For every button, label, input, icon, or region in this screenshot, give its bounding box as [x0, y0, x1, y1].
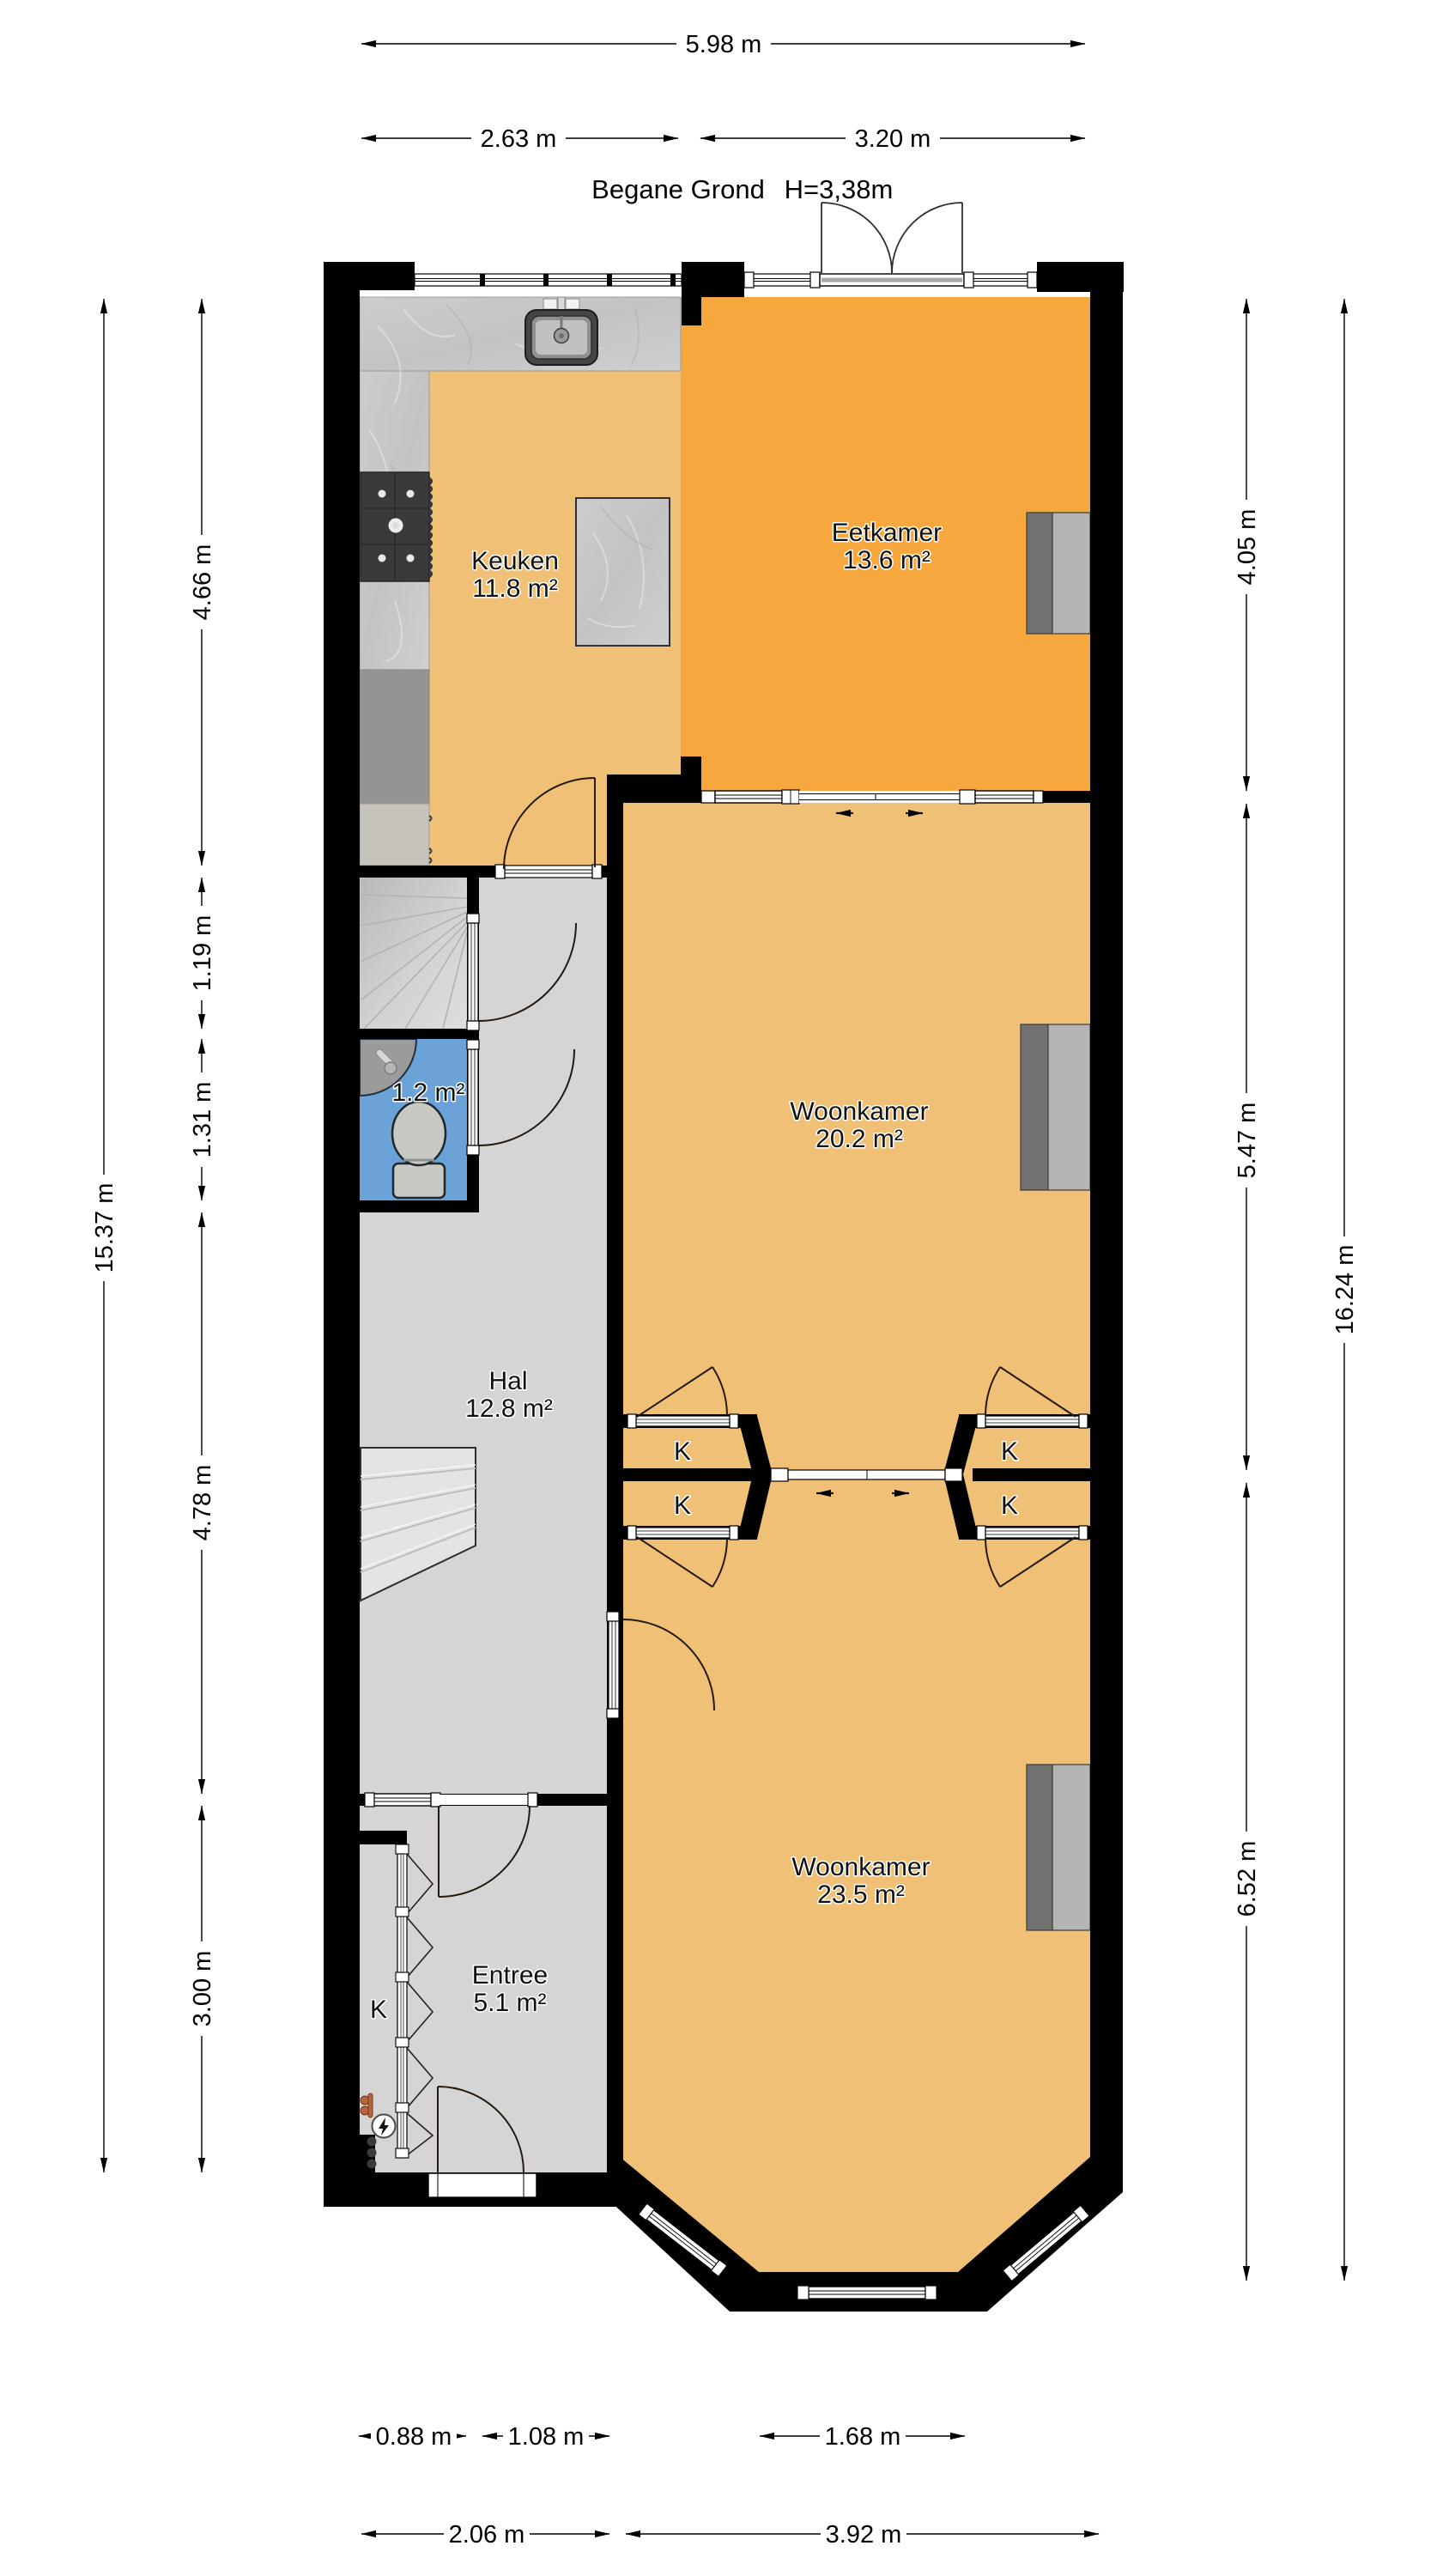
svg-text:15.37 m: 15.37 m [91, 1183, 118, 1273]
svg-text:2.06 m: 2.06 m [449, 2521, 525, 2549]
svg-text:1.31 m: 1.31 m [189, 1082, 216, 1158]
svg-text:20.2 m²: 20.2 m² [815, 1125, 903, 1153]
svg-text:6.52 m: 6.52 m [1234, 1841, 1261, 1917]
svg-text:3.92 m: 3.92 m [826, 2521, 902, 2549]
svg-text:12.8 m²: 12.8 m² [465, 1394, 553, 1423]
svg-text:4.05 m: 4.05 m [1234, 509, 1261, 586]
svg-text:Keuken: Keuken [471, 547, 559, 575]
svg-text:1.08 m: 1.08 m [508, 2423, 585, 2451]
svg-text:K: K [370, 1996, 387, 2024]
svg-text:1.19 m: 1.19 m [189, 915, 216, 992]
svg-text:0.88 m: 0.88 m [376, 2423, 452, 2451]
svg-text:K: K [1001, 1437, 1018, 1466]
svg-text:Begane Grond: Begane Grond [591, 174, 765, 204]
svg-text:Woonkamer: Woonkamer [791, 1853, 930, 1881]
svg-text:3.20 m: 3.20 m [855, 125, 931, 153]
svg-text:Eetkamer: Eetkamer [832, 519, 942, 547]
svg-text:K: K [674, 1437, 691, 1466]
svg-text:1.2 m²: 1.2 m² [391, 1078, 464, 1107]
svg-text:5.47 m: 5.47 m [1234, 1103, 1261, 1179]
svg-text:K: K [674, 1492, 691, 1520]
svg-text:Woonkamer: Woonkamer [790, 1097, 928, 1126]
svg-text:23.5 m²: 23.5 m² [817, 1880, 905, 1909]
svg-text:3.00 m: 3.00 m [189, 1951, 216, 2027]
svg-text:16.24 m: 16.24 m [1331, 1245, 1359, 1335]
svg-text:Hal: Hal [488, 1367, 527, 1395]
svg-text:4.66 m: 4.66 m [189, 544, 216, 621]
svg-text:5.1 m²: 5.1 m² [473, 1989, 546, 2017]
svg-text:2.63 m: 2.63 m [481, 125, 557, 153]
svg-text:Entree: Entree [472, 1961, 548, 1990]
svg-text:13.6 m²: 13.6 m² [843, 546, 931, 574]
svg-text:5.98 m: 5.98 m [686, 31, 762, 58]
svg-text:K: K [1001, 1492, 1018, 1520]
svg-text:H=3,38m: H=3,38m [785, 174, 894, 204]
svg-text:4.78 m: 4.78 m [189, 1465, 216, 1541]
svg-text:11.8 m²: 11.8 m² [472, 574, 557, 603]
svg-text:1.68 m: 1.68 m [825, 2423, 901, 2451]
